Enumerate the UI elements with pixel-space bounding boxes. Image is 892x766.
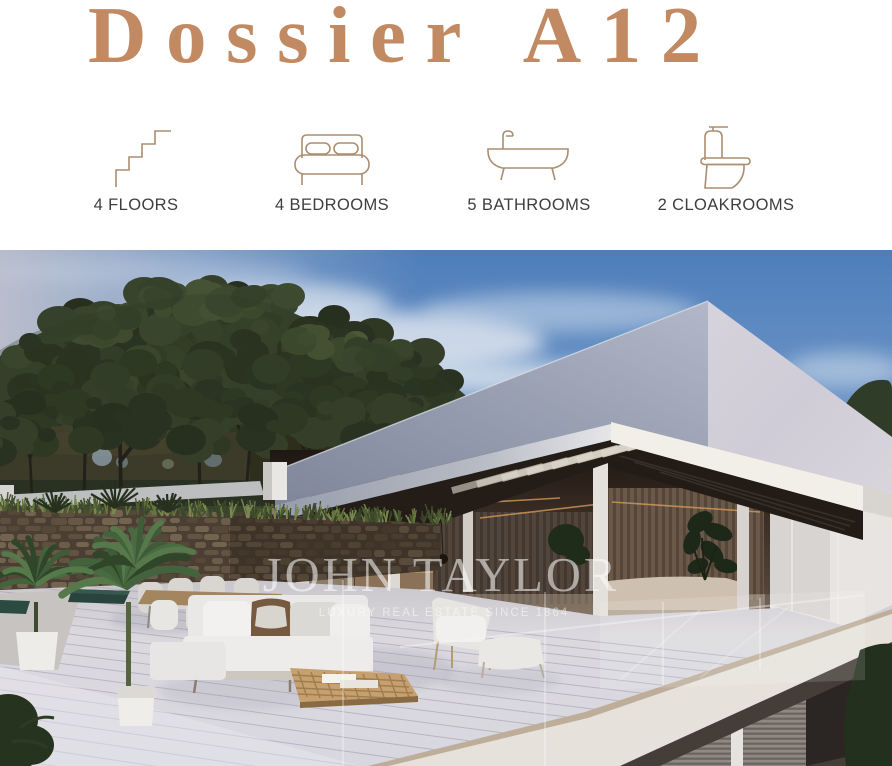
svg-text:JOHN TAYLOR: JOHN TAYLOR <box>263 549 620 602</box>
svg-text:LUXURY REAL ESTATE SINCE 1864: LUXURY REAL ESTATE SINCE 1864 <box>319 607 569 619</box>
